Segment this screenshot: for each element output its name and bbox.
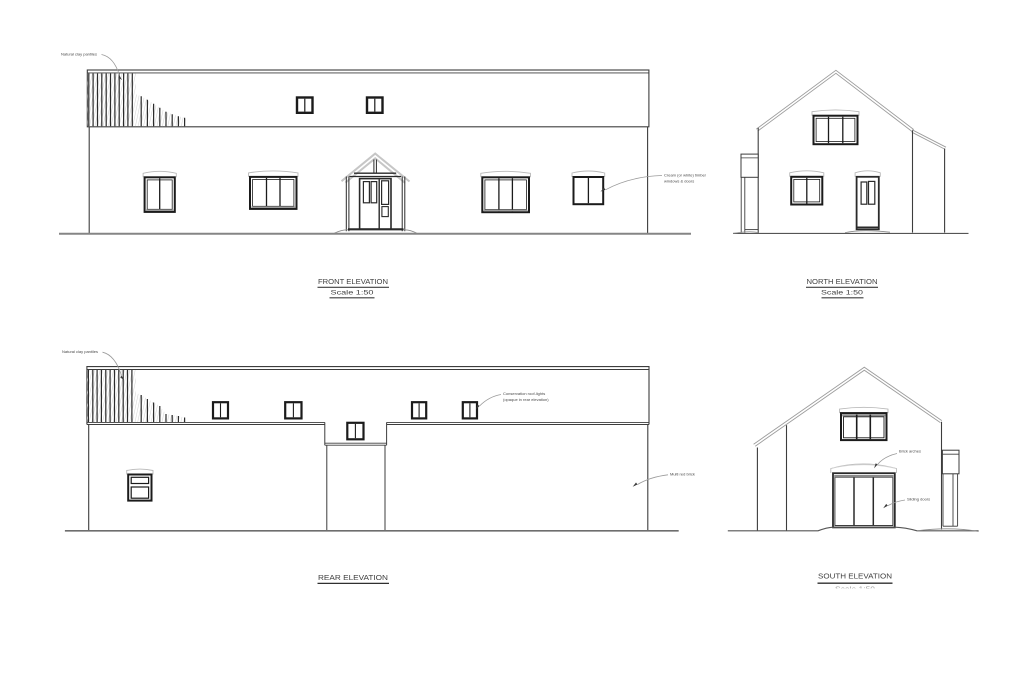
svg-text:FRONT ELEVATION: FRONT ELEVATION [318, 277, 388, 286]
svg-text:Natural clay pantiles: Natural clay pantiles [61, 52, 97, 57]
svg-text:Scale 1:50: Scale 1:50 [331, 290, 375, 297]
svg-text:NORTH ELEVATION: NORTH ELEVATION [807, 277, 878, 286]
svg-text:Brick arches: Brick arches [899, 449, 921, 454]
svg-text:Natural clay pantiles: Natural clay pantiles [62, 349, 98, 354]
svg-text:REAR ELEVATION: REAR ELEVATION [318, 573, 388, 582]
svg-text:SOUTH ELEVATION: SOUTH ELEVATION [818, 572, 892, 581]
svg-text:(opaque in rear elevation): (opaque in rear elevation) [503, 397, 549, 402]
svg-text:windows & doors: windows & doors [664, 179, 694, 184]
svg-text:Conservation roof-lights: Conservation roof-lights [503, 391, 545, 396]
svg-text:Cream (or white) timber: Cream (or white) timber [664, 172, 707, 177]
svg-text:Multi red brick: Multi red brick [670, 471, 695, 476]
svg-text:Scale 1:50: Scale 1:50 [821, 290, 864, 297]
svg-text:Sliding doors: Sliding doors [907, 496, 930, 501]
